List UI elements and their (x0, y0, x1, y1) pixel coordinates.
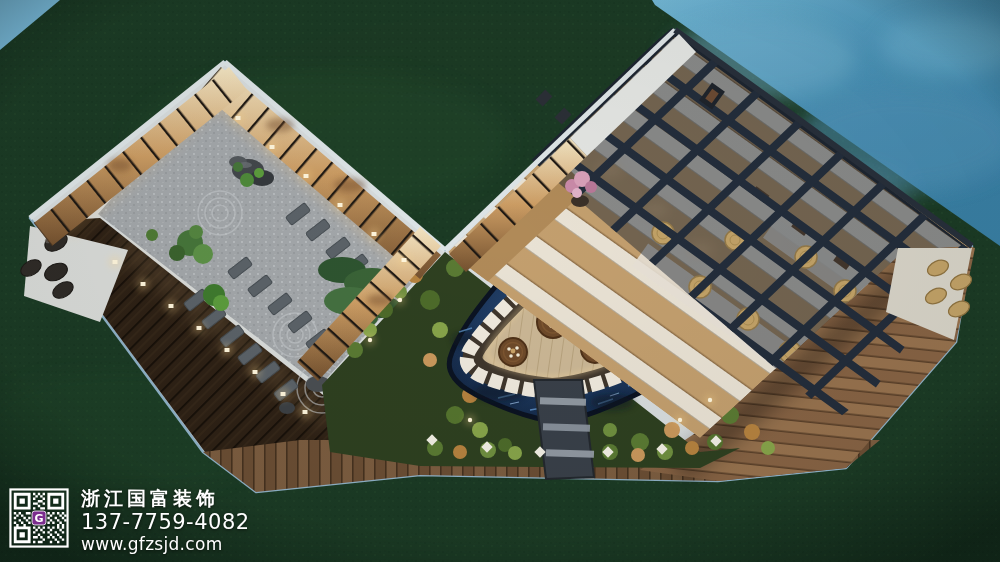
watermark-phone: 137-7759-4082 (81, 511, 250, 533)
qr-logo-letter: G (34, 512, 43, 525)
rendering-canvas: G 浙江国富装饰 137-7759-4082 www.gfzsjd.com (0, 0, 1000, 562)
watermark-website: www.gfzsjd.com (81, 535, 250, 553)
watermark: G 浙江国富装饰 137-7759-4082 www.gfzsjd.com (9, 488, 250, 553)
watermark-company: 浙江国富装饰 (81, 488, 250, 508)
night-vignette (0, 0, 1000, 562)
scene-rendering (0, 0, 1000, 562)
qr-code: G (9, 488, 69, 548)
watermark-text: 浙江国富装饰 137-7759-4082 www.gfzsjd.com (81, 488, 250, 553)
